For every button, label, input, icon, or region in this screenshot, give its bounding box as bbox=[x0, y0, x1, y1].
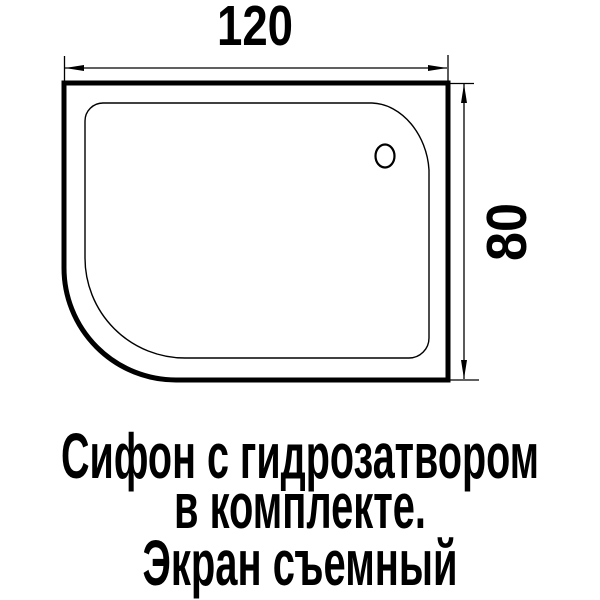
width-dimension: 120 bbox=[65, 0, 449, 89]
arrowhead-down-icon bbox=[461, 360, 467, 379]
drain-hole bbox=[376, 145, 395, 168]
shower-tray-dimension-diagram: 120 80 Сифон с гидрозатвором в комплекте… bbox=[0, 0, 600, 600]
tray-inner-rim-outline bbox=[85, 103, 429, 358]
diagram-canvas: 120 80 Сифон с гидрозатвором в комплекте… bbox=[0, 0, 600, 600]
width-dimension-label: 120 bbox=[217, 0, 293, 58]
height-dimension: 80 bbox=[450, 84, 539, 381]
arrowhead-right-icon bbox=[428, 65, 447, 71]
height-dimension-label: 80 bbox=[475, 203, 539, 261]
caption: Сифон с гидрозатвором в комплекте. Экран… bbox=[61, 420, 539, 599]
caption-line-3: Экран съемный bbox=[143, 527, 458, 599]
arrowhead-left-icon bbox=[65, 65, 84, 71]
arrowhead-up-icon bbox=[461, 84, 467, 103]
